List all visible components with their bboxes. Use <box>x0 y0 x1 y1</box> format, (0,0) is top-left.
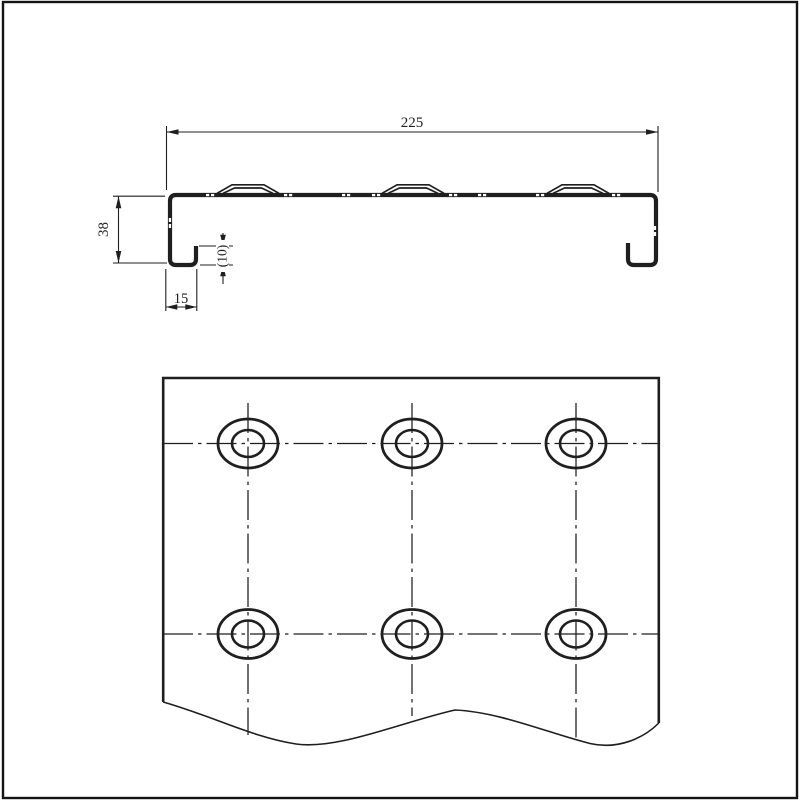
profile-section-view: 225 38 15 (10) <box>96 115 658 311</box>
arrowhead <box>116 196 122 208</box>
rib-emboss-inner <box>553 188 603 193</box>
arrowhead <box>646 129 658 135</box>
dim-text-bottom-return: 15 <box>174 291 189 307</box>
dimension-lip-height: (10) <box>199 233 233 284</box>
dim-text-lip-height: (10) <box>215 245 230 268</box>
break-line-wavy <box>163 702 659 745</box>
rib-emboss-inner <box>388 188 438 193</box>
arrowhead <box>167 129 179 135</box>
profile-outline <box>170 195 656 265</box>
rib-embossments <box>217 185 609 194</box>
dim-text-overall-width: 225 <box>401 115 424 131</box>
arrowhead <box>116 251 122 263</box>
dim-text-height: 38 <box>96 222 112 237</box>
rib-emboss-inner <box>223 188 273 193</box>
dimension-overall-width: 225 <box>167 115 659 192</box>
sheet-core-dashes <box>169 194 656 236</box>
dimension-bottom-return: 15 <box>166 269 197 311</box>
drawing-sheet: 225 38 15 (10) <box>0 0 800 800</box>
dimension-height: 38 <box>96 196 167 263</box>
technical-drawing-canvas: 225 38 15 (10) <box>0 0 800 800</box>
plate-plan-view <box>163 378 659 745</box>
